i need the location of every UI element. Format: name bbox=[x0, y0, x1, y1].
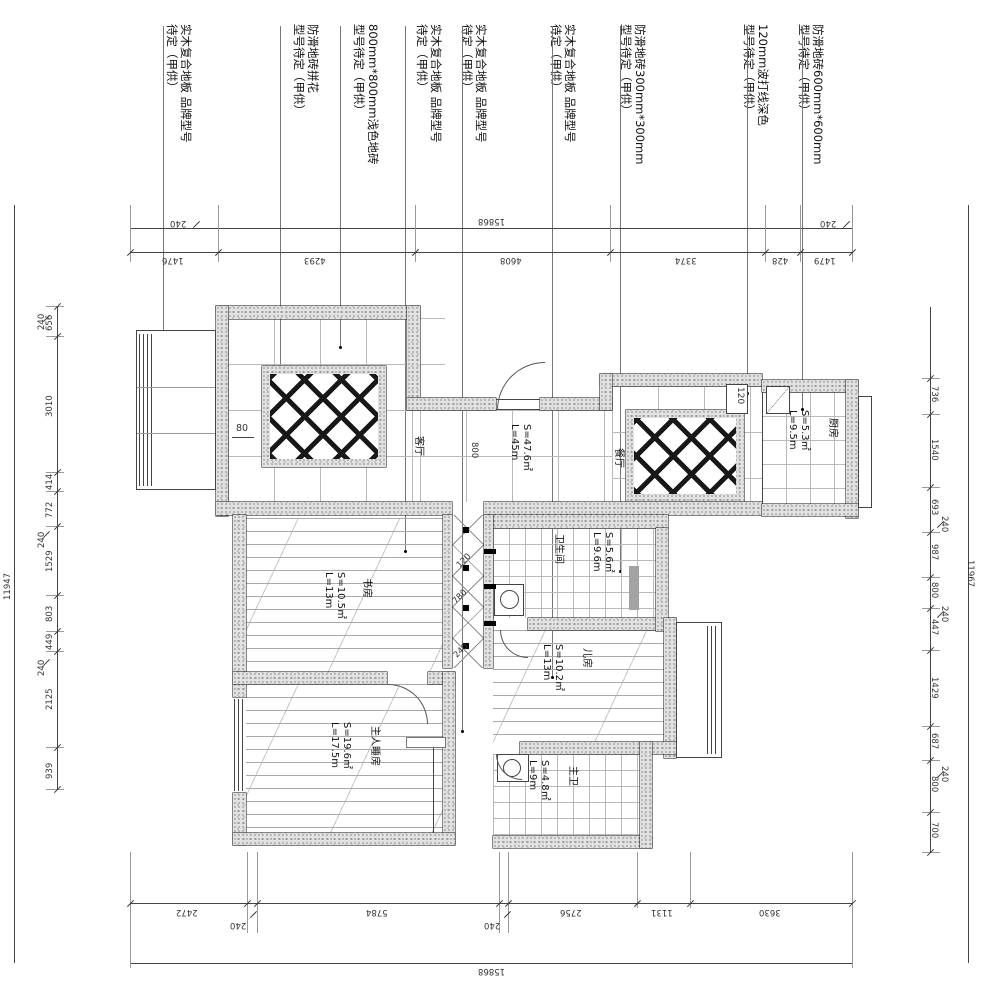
annotation-text: 实木复合地板 品牌型号 bbox=[429, 24, 443, 143]
dim-bottom-overall: 15868 bbox=[478, 966, 505, 975]
room-label-bath: 卫生间 bbox=[552, 534, 564, 564]
annotation-text: 待定（甲供） bbox=[165, 24, 179, 93]
wall bbox=[762, 504, 858, 516]
wall bbox=[233, 672, 387, 684]
dim-value: 4293 bbox=[304, 255, 326, 264]
dim-value: 449 bbox=[46, 634, 55, 650]
closet-partition bbox=[433, 748, 434, 833]
dim-value: 687 bbox=[929, 733, 938, 749]
dim-value: 2756 bbox=[560, 907, 582, 916]
room-label-study: 书房 bbox=[360, 578, 372, 598]
dim-value: 3630 bbox=[759, 907, 781, 916]
wall bbox=[484, 515, 668, 528]
leader-line bbox=[747, 26, 748, 394]
annotation-text: 型号待定（甲供） bbox=[619, 24, 633, 116]
wall-corridor-left bbox=[443, 515, 452, 668]
dim-leader-240: 240 bbox=[38, 314, 47, 330]
dim-value: 414 bbox=[46, 474, 55, 490]
dim-value: 1479 bbox=[814, 255, 836, 264]
dim-value: 939 bbox=[46, 763, 55, 779]
room-label-kids: 儿房 bbox=[580, 648, 592, 668]
extension-line bbox=[130, 852, 131, 968]
master-window bbox=[234, 699, 245, 791]
wall bbox=[407, 306, 420, 410]
wall bbox=[407, 398, 496, 410]
extension-line bbox=[690, 852, 691, 908]
wall bbox=[640, 742, 652, 848]
marker bbox=[484, 584, 496, 589]
dim-value: 447 bbox=[929, 619, 938, 635]
leader-dot bbox=[461, 730, 464, 733]
extension-line bbox=[247, 852, 248, 933]
extension-line bbox=[852, 852, 853, 968]
room-label-living: 客厅 bbox=[412, 436, 424, 456]
dim-line-top-segments bbox=[130, 252, 852, 253]
wall bbox=[493, 836, 652, 848]
dim-value: 772 bbox=[46, 502, 55, 518]
dim-value: 693 bbox=[929, 499, 938, 515]
dim-line-left-overall bbox=[14, 205, 15, 963]
extension-line bbox=[637, 852, 638, 908]
room-stats-study: S=10.5㎡L=13m bbox=[322, 572, 346, 619]
wall bbox=[600, 374, 612, 410]
plan-dim-800: 800 bbox=[469, 442, 478, 458]
marker bbox=[484, 549, 496, 554]
room-stats-kitchen: S=5.3㎡L=9.5m bbox=[786, 410, 810, 451]
marker bbox=[463, 527, 469, 533]
wall bbox=[520, 742, 676, 754]
dim-line-bottom-overall bbox=[130, 963, 852, 964]
dim-leader-240: 240 bbox=[820, 218, 836, 227]
dim-value: 428 bbox=[772, 255, 788, 264]
dim-top-overall: 15868 bbox=[478, 216, 505, 225]
dim-leader-240: 240 bbox=[170, 218, 186, 227]
dim-value: 987 bbox=[929, 544, 938, 560]
bathroom-basin-bowl bbox=[500, 590, 519, 609]
marker bbox=[484, 621, 496, 626]
wall bbox=[443, 672, 455, 845]
dim-leader-240: 240 bbox=[484, 920, 500, 929]
dim-line-bottom-segments bbox=[130, 903, 852, 904]
room-stats-master: S=19.6㎡L=17.5m bbox=[328, 722, 352, 769]
annotation-text: 防滑地砖300mm*300mm bbox=[633, 24, 647, 164]
dim-value: 700 bbox=[929, 822, 938, 838]
wall-corridor-right bbox=[484, 515, 493, 668]
duct-shaft bbox=[629, 566, 639, 610]
dim-value: 1540 bbox=[929, 439, 938, 461]
room-label-dining: 餐厅 bbox=[612, 448, 624, 468]
dim-value: 4608 bbox=[500, 255, 522, 264]
annotation-text: 实木复合地板 品牌型号 bbox=[179, 24, 193, 143]
dim-value: 1429 bbox=[929, 677, 938, 699]
leader-line bbox=[802, 26, 803, 410]
dim-line-top-overall bbox=[130, 228, 852, 229]
wall bbox=[484, 502, 762, 515]
extension-line bbox=[508, 852, 509, 933]
annotation-text: 防滑地砖600mm*600mm bbox=[811, 24, 825, 164]
room-label-kitchen: 厨房 bbox=[826, 418, 838, 438]
dim-value: 803 bbox=[46, 606, 55, 622]
dim-value: 2472 bbox=[176, 907, 198, 916]
dim-line-left-segments bbox=[57, 306, 58, 789]
material-annotation-9: 防滑地砖600mm*600mm型号待定（甲供） bbox=[825, 24, 965, 52]
dim-value: 736 bbox=[929, 386, 938, 402]
annotation-text: 待定（甲供） bbox=[415, 24, 429, 93]
room-label-master: 主人睡房 bbox=[368, 726, 380, 766]
entry-door-arc bbox=[497, 362, 545, 410]
dim-right-overall: 11967 bbox=[965, 560, 974, 587]
dim-leader-240: 240 bbox=[230, 920, 246, 929]
annotation-text: 800mm*800mm浅色地砖 bbox=[366, 24, 380, 164]
wall bbox=[528, 618, 676, 630]
wall bbox=[216, 306, 420, 319]
dim-value: 1131 bbox=[651, 907, 673, 916]
dim-value: 1529 bbox=[46, 550, 55, 572]
wall bbox=[664, 618, 676, 758]
kitchen-window bbox=[858, 396, 872, 508]
wall bbox=[216, 502, 452, 515]
plan-dim-120: 120 bbox=[735, 387, 744, 404]
annotation-text: 120mm波打线深色 bbox=[756, 24, 770, 126]
wall bbox=[846, 380, 858, 518]
room-stats-master-bath: S=4.8㎡L=9m bbox=[526, 760, 550, 801]
dim-left-overall: 11947 bbox=[4, 573, 13, 600]
kitchen-divider-line bbox=[762, 392, 763, 504]
annotation-text: 型号待定（甲供） bbox=[352, 24, 366, 116]
inlay-lattice-dining bbox=[634, 418, 736, 494]
plan-dim-80: 80 bbox=[236, 424, 248, 433]
dim-value: 2125 bbox=[46, 688, 55, 710]
wall bbox=[233, 515, 246, 697]
floor-plan-canvas: 实木复合地板 品牌型号待定（甲供） 防滑地砖拼花型号待定（甲供） 800mm*8… bbox=[0, 0, 1000, 1000]
room-stats-bath: S=5.6㎡L=9.6m bbox=[590, 532, 614, 573]
wardrobe-box bbox=[406, 737, 446, 748]
extension-line bbox=[257, 852, 258, 933]
leader-line bbox=[340, 26, 341, 348]
dim-value: 1476 bbox=[162, 255, 184, 264]
annotation-text: 型号待定（甲供） bbox=[292, 24, 306, 116]
annotation-text: 型号待定（甲供） bbox=[797, 24, 811, 116]
wall bbox=[233, 833, 455, 845]
room-stats-living: S=47.6㎡L=45m bbox=[508, 424, 532, 471]
annotation-text: 实木复合地板 品牌型号 bbox=[474, 24, 488, 143]
window-glazing bbox=[139, 334, 152, 486]
marker bbox=[463, 605, 469, 611]
dim-value: 800 bbox=[929, 582, 938, 598]
annotation-text: 型号待定（甲供） bbox=[742, 24, 756, 116]
annotation-text: 防滑地砖拼花 bbox=[306, 24, 320, 93]
room-label-master-bath: 主卫 bbox=[566, 766, 578, 786]
annotation-text: 实木复合地板 品牌型号 bbox=[563, 24, 577, 143]
dim-value: 3010 bbox=[46, 395, 55, 417]
room-stats-kids: S=10.2㎡L=13m bbox=[540, 644, 564, 691]
window-glazing bbox=[707, 626, 719, 754]
inlay-lattice-living bbox=[270, 374, 378, 459]
dim-value: 800 bbox=[929, 776, 938, 792]
dim-value: 3374 bbox=[675, 255, 697, 264]
wall bbox=[656, 528, 668, 631]
dim-value: 5784 bbox=[366, 907, 388, 916]
wall bbox=[216, 306, 228, 516]
